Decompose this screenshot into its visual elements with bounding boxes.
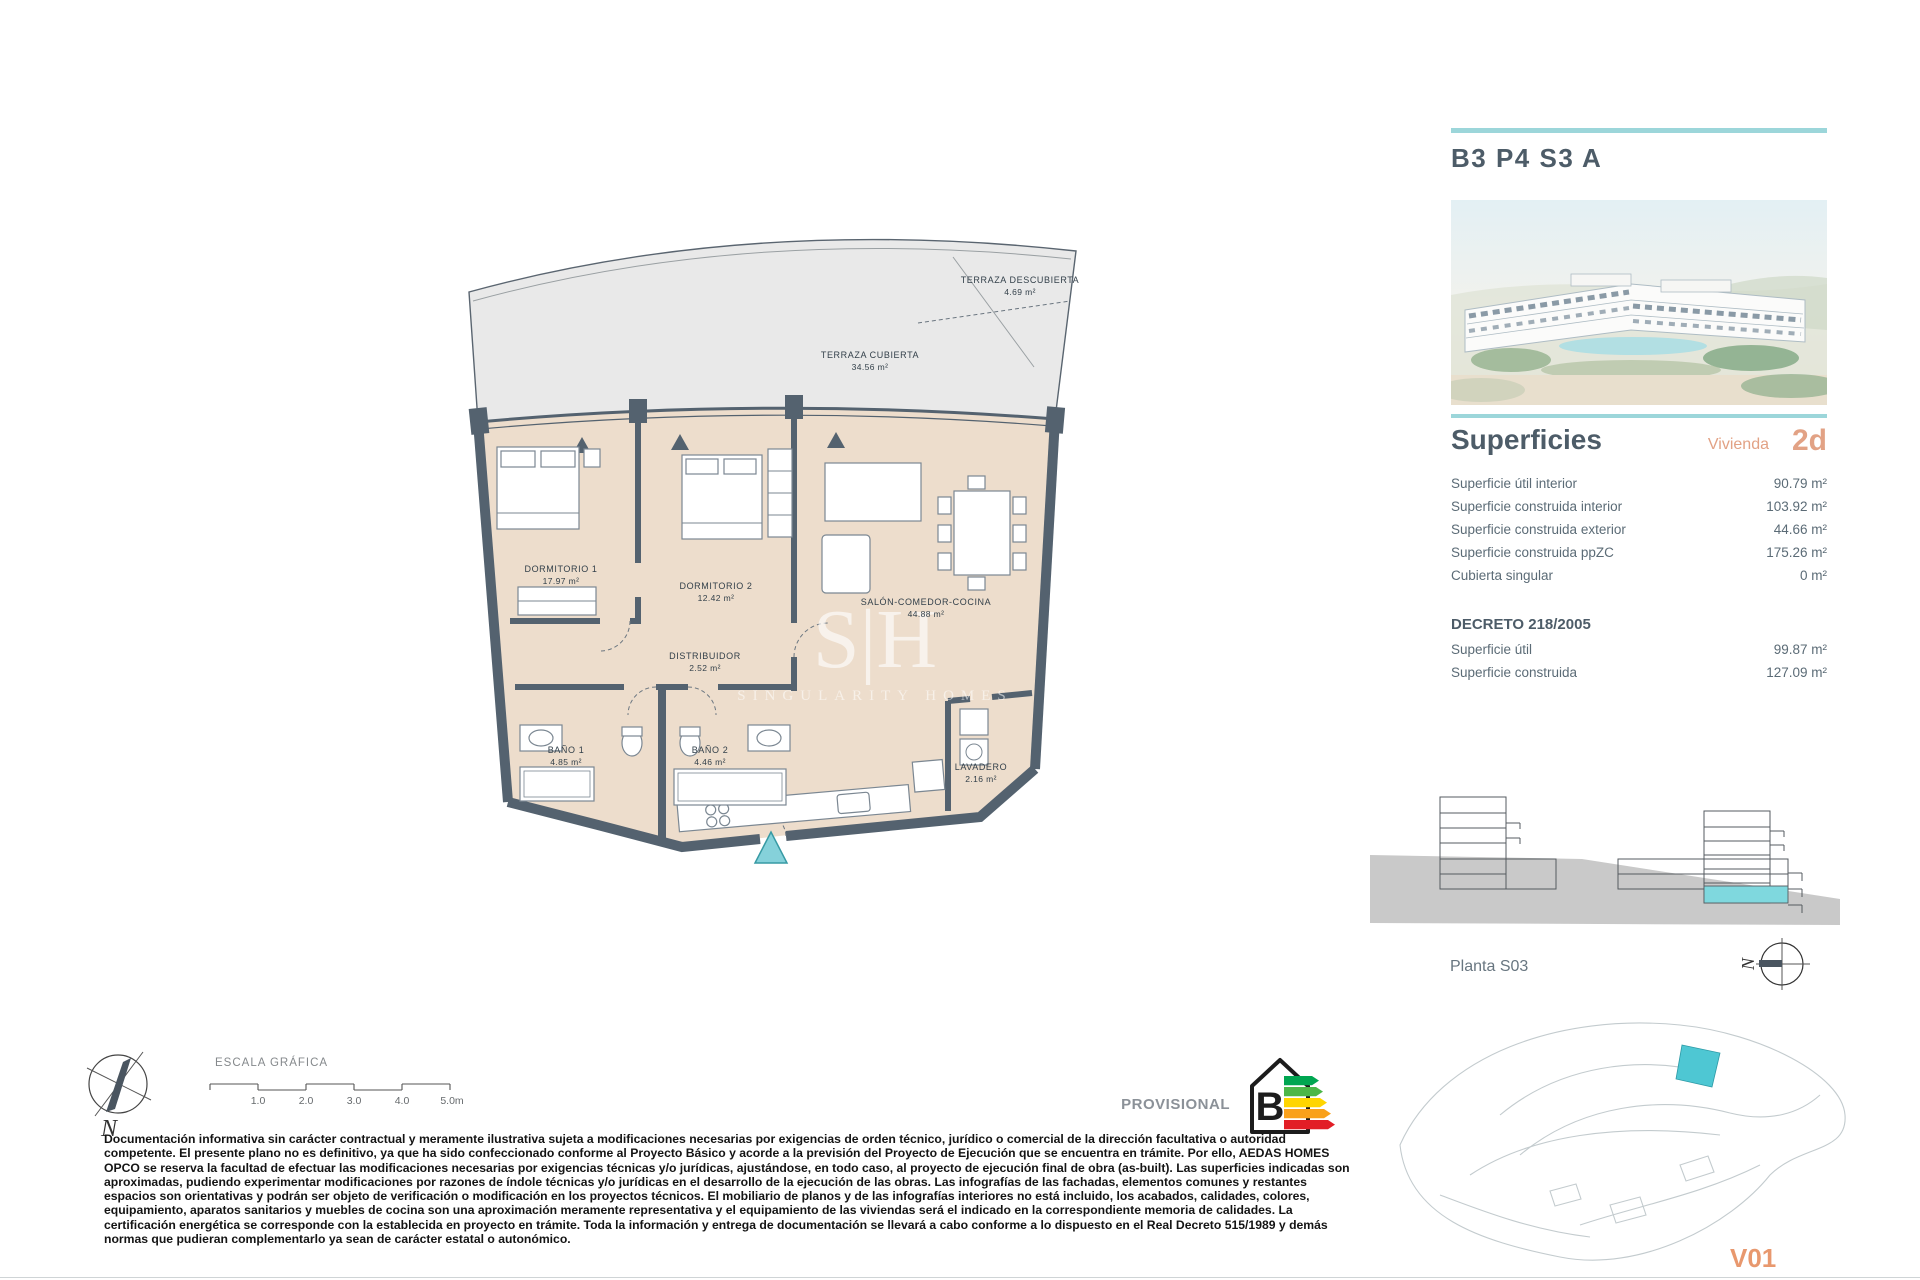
svg-text:2.52 m²: 2.52 m² xyxy=(689,663,721,673)
svg-text:4.46 m²: 4.46 m² xyxy=(694,757,726,767)
svg-text:12.42 m²: 12.42 m² xyxy=(698,593,735,603)
siteplan-north-icon: N xyxy=(1738,928,1818,1000)
graphic-scale: ESCALA GRÁFICA 1.0 2.0 3.0 4.0 5.0m xyxy=(200,1052,470,1112)
superficies-table: Superficie útil interior 90.79 m² Superf… xyxy=(1451,476,1827,591)
highlighted-unit xyxy=(1676,1045,1720,1087)
unit-code: B3 P4 S3 A xyxy=(1451,143,1602,174)
svg-text:BAÑO 2: BAÑO 2 xyxy=(692,745,729,755)
table-row: Superficie construida interior 103.92 m² xyxy=(1451,499,1827,522)
table-row: Superficie útil interior 90.79 m² xyxy=(1451,476,1827,499)
legal-disclaimer: Documentación informativa sin carácter c… xyxy=(104,1132,1360,1246)
energy-bars xyxy=(1284,1076,1335,1129)
page-bottom-rule xyxy=(0,1277,1920,1278)
header-rule xyxy=(1451,128,1827,133)
vivienda-type: 2d xyxy=(1792,424,1827,458)
svg-text:3.0: 3.0 xyxy=(347,1095,362,1107)
bedroom2-furniture xyxy=(682,449,792,539)
svg-text:5.0m: 5.0m xyxy=(440,1095,464,1107)
decreto-title: DECRETO 218/2005 xyxy=(1451,616,1591,633)
table-row: Cubierta singular 0 m² xyxy=(1451,568,1827,591)
watermark-name: SINGULARITY HOMES xyxy=(737,688,1013,704)
svg-text:4.85 m²: 4.85 m² xyxy=(550,757,582,767)
energy-rating-letter: B xyxy=(1256,1085,1285,1129)
building-render xyxy=(1451,200,1827,405)
north-letter: N xyxy=(1738,957,1758,971)
superficies-rule xyxy=(1451,414,1827,418)
svg-text:DORMITORIO 1: DORMITORIO 1 xyxy=(524,564,597,574)
decreto-table: Superficie útil 99.87 m² Superficie cons… xyxy=(1451,642,1827,688)
svg-text:1.0: 1.0 xyxy=(251,1095,266,1107)
compass-icon: N xyxy=(73,1040,168,1140)
svg-text:2.16 m²: 2.16 m² xyxy=(965,774,997,784)
scale-title: ESCALA GRÁFICA xyxy=(215,1056,328,1069)
floor-plan: S|H SINGULARITY HOMES TERRAZA DESCUBIERT… xyxy=(370,195,1130,895)
svg-text:4.0: 4.0 xyxy=(395,1095,410,1107)
svg-text:2.0: 2.0 xyxy=(299,1095,314,1107)
svg-text:17.97 m²: 17.97 m² xyxy=(543,576,580,586)
svg-text:TERRAZA DESCUBIERTA: TERRAZA DESCUBIERTA xyxy=(961,275,1080,285)
floor-level-label: Planta S03 xyxy=(1450,958,1528,976)
plan-sheet: S|H SINGULARITY HOMES TERRAZA DESCUBIERT… xyxy=(0,0,1920,1280)
svg-text:34.56 m²: 34.56 m² xyxy=(852,362,889,372)
superficies-header: Superficies Vivienda 2d xyxy=(1451,424,1827,464)
table-row: Superficie construida ppZC 175.26 m² xyxy=(1451,545,1827,568)
section-diagram xyxy=(1370,783,1840,933)
provisional-label: PROVISIONAL xyxy=(1040,1096,1230,1113)
svg-text:BAÑO 1: BAÑO 1 xyxy=(548,745,585,755)
svg-text:LAVADERO: LAVADERO xyxy=(955,762,1007,772)
table-row: Superficie útil 99.87 m² xyxy=(1451,642,1827,665)
version-label: V01 xyxy=(1730,1243,1776,1274)
svg-text:44.88 m²: 44.88 m² xyxy=(908,609,945,619)
superficies-title: Superficies xyxy=(1451,424,1602,456)
energy-certificate-icon: B xyxy=(1240,1048,1340,1140)
highlighted-floor xyxy=(1704,886,1788,903)
table-row: Superficie construida exterior 44.66 m² xyxy=(1451,522,1827,545)
site-plan xyxy=(1380,995,1860,1280)
svg-text:DORMITORIO 2: DORMITORIO 2 xyxy=(679,581,752,591)
svg-text:DISTRIBUIDOR: DISTRIBUIDOR xyxy=(669,651,741,661)
terrace-shape xyxy=(469,240,1076,422)
table-row: Superficie construida 127.09 m² xyxy=(1451,665,1827,688)
svg-text:4.69 m²: 4.69 m² xyxy=(1004,287,1036,297)
svg-text:TERRAZA CUBIERTA: TERRAZA CUBIERTA xyxy=(821,350,919,360)
vivienda-label: Vivienda xyxy=(1708,436,1769,454)
svg-text:SALÓN-COMEDOR-COCINA: SALÓN-COMEDOR-COCINA xyxy=(861,597,992,607)
